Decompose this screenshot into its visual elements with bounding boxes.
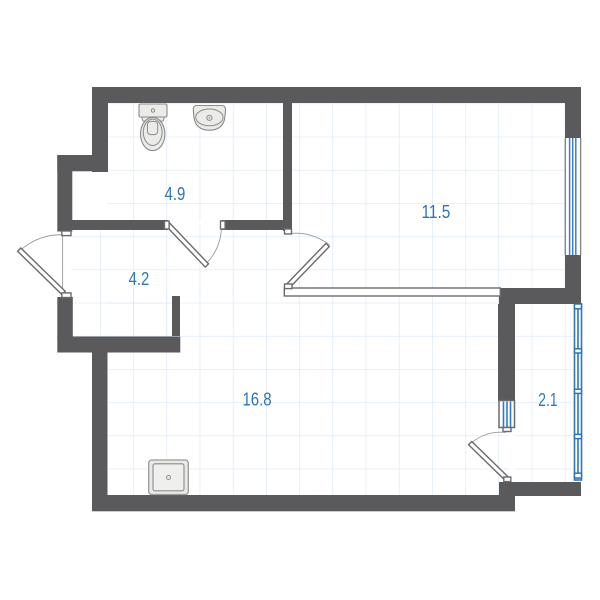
- svg-text:2.1: 2.1: [538, 389, 557, 410]
- svg-text:4.2: 4.2: [129, 268, 150, 289]
- svg-text:16.8: 16.8: [242, 389, 271, 410]
- svg-text:4.9: 4.9: [165, 183, 186, 204]
- svg-text:11.5: 11.5: [421, 201, 450, 222]
